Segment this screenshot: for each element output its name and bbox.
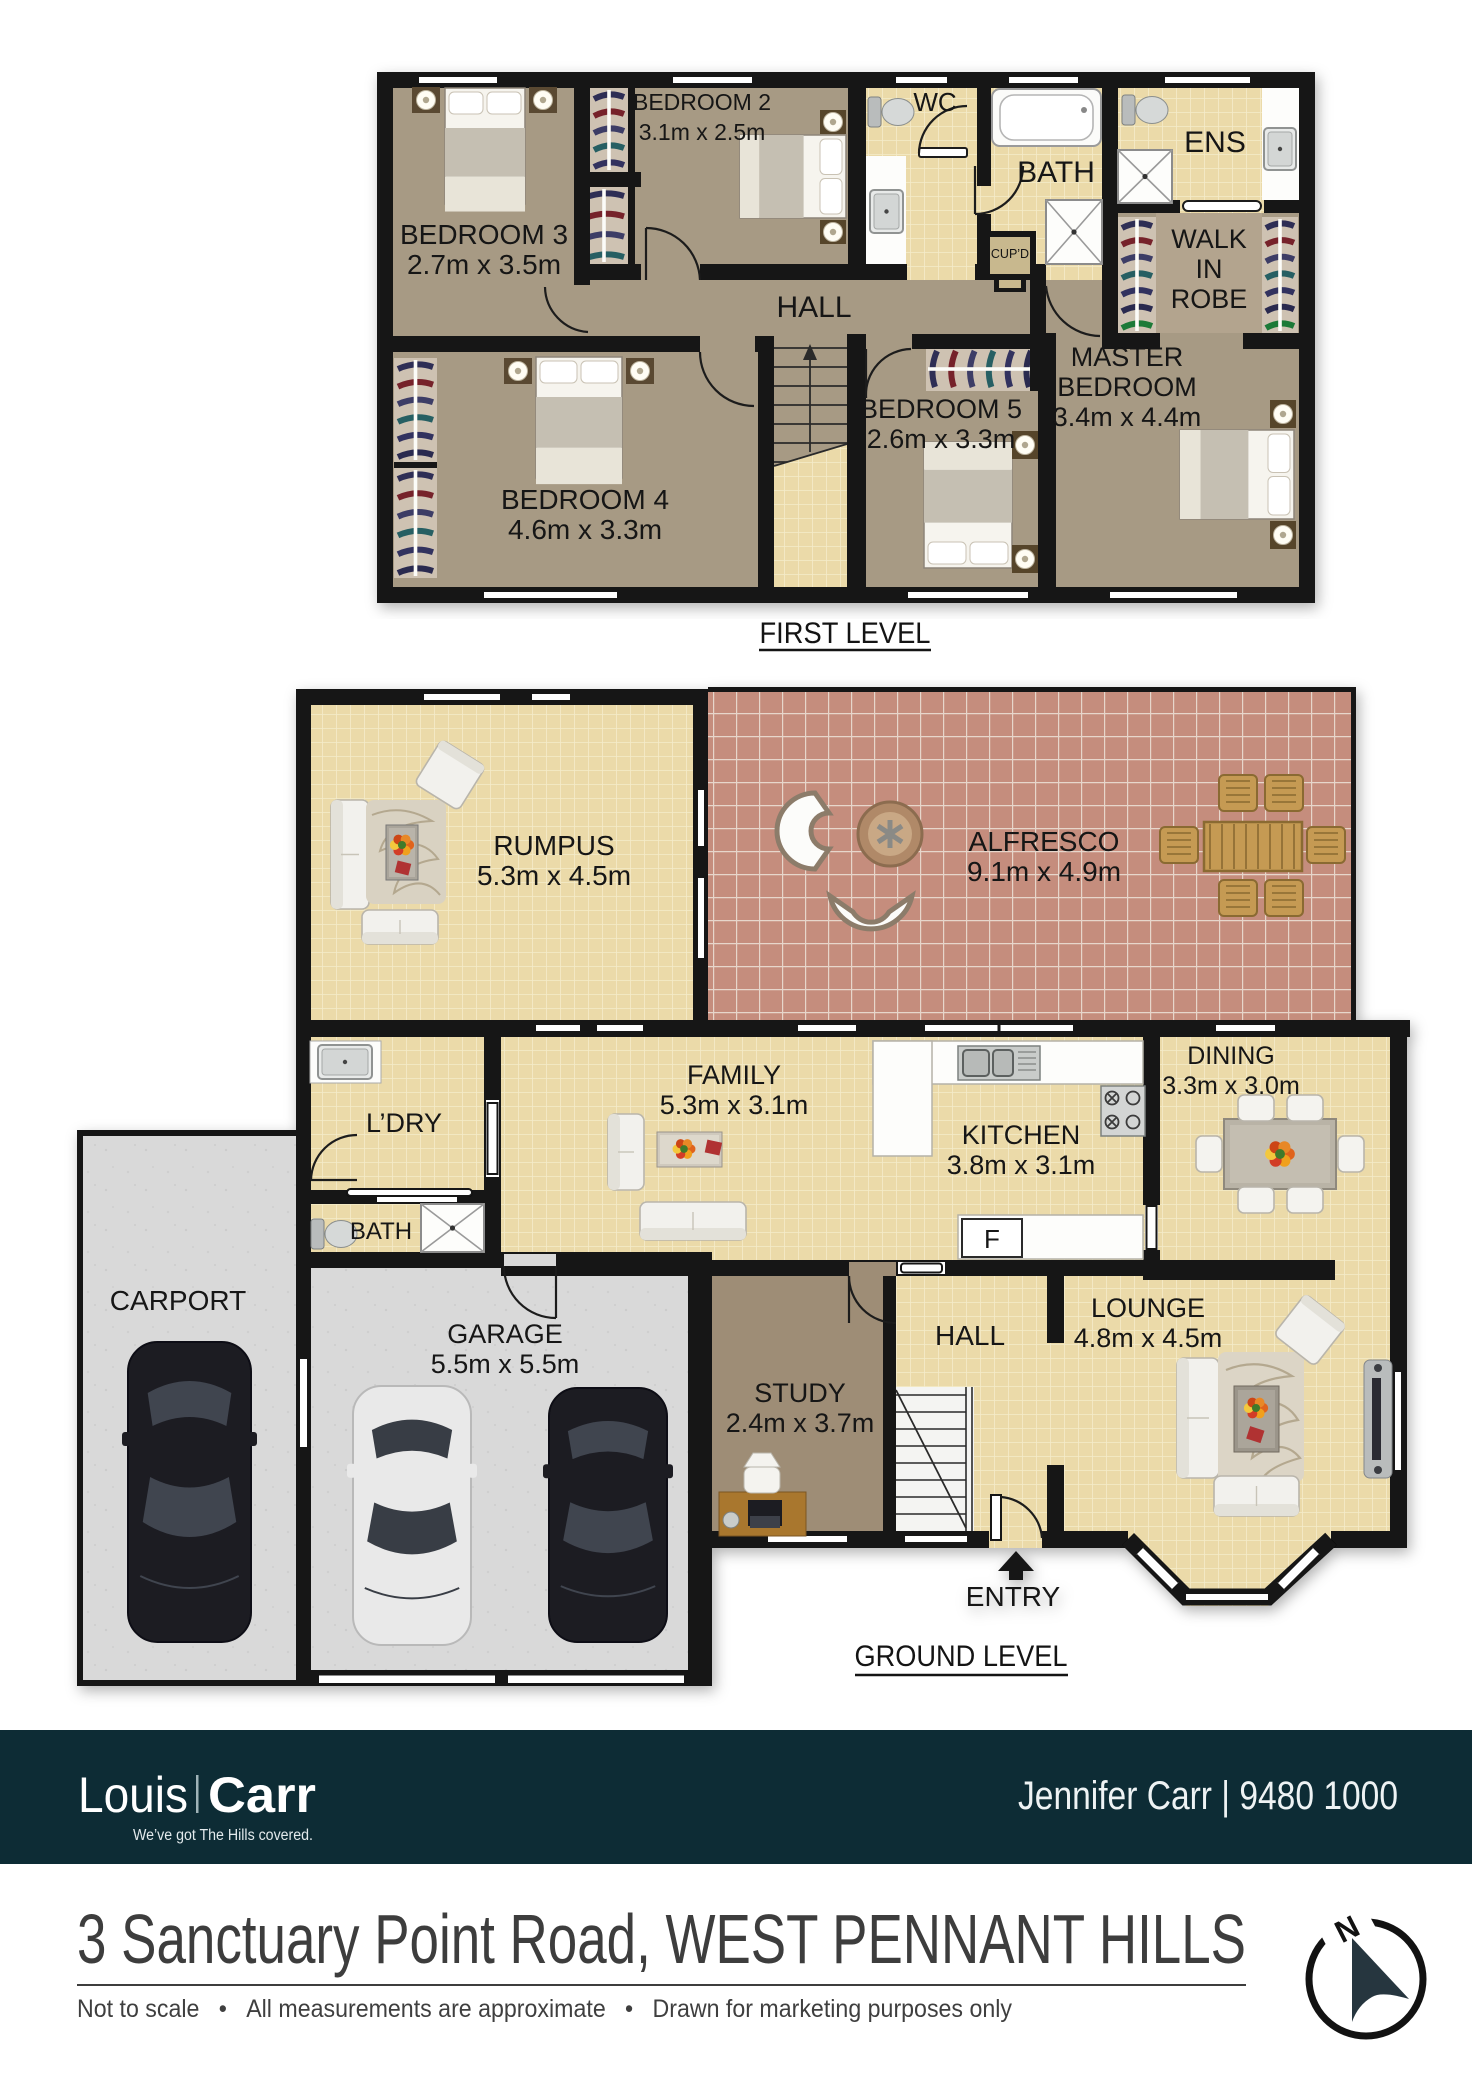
svg-text:ENTRY: ENTRY	[966, 1581, 1061, 1612]
svg-text:4.8m x 4.5m: 4.8m x 4.5m	[1074, 1323, 1223, 1353]
svg-text:3.3m x 3.0m: 3.3m x 3.0m	[1162, 1072, 1300, 1100]
svg-text:4.6m x 3.3m: 4.6m x 3.3m	[508, 514, 662, 545]
svg-text:3.4m x 4.4m: 3.4m x 4.4m	[1053, 402, 1202, 432]
svg-text:BEDROOM 4: BEDROOM 4	[501, 484, 669, 515]
svg-text:BEDROOM 2: BEDROOM 2	[633, 89, 771, 115]
svg-text:We’ve got The Hills covered.: We’ve got The Hills covered.	[133, 1827, 313, 1844]
svg-text:3 Sanctuary Point Road, WEST P: 3 Sanctuary Point Road, WEST PENNANT HIL…	[77, 1900, 1246, 1978]
svg-text:BATH: BATH	[1017, 156, 1095, 189]
svg-text:5.3m x 3.1m: 5.3m x 3.1m	[660, 1090, 809, 1120]
svg-text:2.7m x 3.5m: 2.7m x 3.5m	[407, 249, 561, 280]
svg-text:KITCHEN: KITCHEN	[962, 1120, 1081, 1150]
svg-text:CUP’D: CUP’D	[991, 247, 1029, 261]
svg-text:HALL: HALL	[935, 1320, 1005, 1351]
svg-text:3.1m x 2.5m: 3.1m x 2.5m	[639, 119, 766, 145]
svg-text:BEDROOM 5: BEDROOM 5	[860, 394, 1022, 424]
svg-text:5.5m x 5.5m: 5.5m x 5.5m	[431, 1349, 580, 1379]
svg-text:Not to scale • All measure: Not to scale • All measurements are appr…	[77, 1995, 1012, 2023]
svg-text:FAMILY: FAMILY	[687, 1060, 781, 1090]
svg-text:Carr: Carr	[208, 1767, 316, 1823]
svg-text:GARAGE: GARAGE	[447, 1319, 563, 1349]
svg-text:ROBE: ROBE	[1171, 284, 1248, 314]
svg-text:2.6m x 3.3m: 2.6m x 3.3m	[867, 424, 1016, 454]
svg-text:Jennifer Carr | 9480 1000: Jennifer Carr | 9480 1000	[1018, 1774, 1398, 1818]
svg-text:2.4m x 3.7m: 2.4m x 3.7m	[726, 1408, 875, 1438]
svg-text:3.8m x 3.1m: 3.8m x 3.1m	[947, 1150, 1096, 1180]
svg-text:BATH: BATH	[350, 1218, 412, 1245]
svg-text:DINING: DINING	[1187, 1042, 1275, 1070]
svg-text:HALL: HALL	[776, 291, 851, 324]
svg-text:5.3m x 4.5m: 5.3m x 4.5m	[477, 860, 631, 891]
svg-text:GROUND LEVEL: GROUND LEVEL	[855, 1640, 1068, 1673]
svg-text:BEDROOM 3: BEDROOM 3	[400, 219, 568, 250]
svg-text:9.1m x 4.9m: 9.1m x 4.9m	[967, 856, 1121, 887]
svg-text:Louis: Louis	[78, 1767, 188, 1823]
svg-text:ENS: ENS	[1184, 126, 1246, 159]
svg-text:ALFRESCO: ALFRESCO	[969, 826, 1120, 857]
svg-text:BEDROOM: BEDROOM	[1057, 372, 1197, 402]
svg-text:F: F	[984, 1224, 1000, 1254]
svg-text:LOUNGE: LOUNGE	[1091, 1293, 1205, 1323]
svg-text:STUDY: STUDY	[754, 1378, 846, 1408]
svg-text:CARPORT: CARPORT	[110, 1285, 246, 1316]
svg-text:WC: WC	[913, 87, 956, 117]
svg-text:IN: IN	[1196, 254, 1223, 284]
svg-text:L’DRY: L’DRY	[366, 1108, 442, 1138]
svg-text:MASTER: MASTER	[1071, 342, 1184, 372]
svg-text:FIRST LEVEL: FIRST LEVEL	[760, 617, 931, 650]
svg-text:RUMPUS: RUMPUS	[493, 830, 614, 861]
svg-text:WALK: WALK	[1171, 224, 1247, 254]
